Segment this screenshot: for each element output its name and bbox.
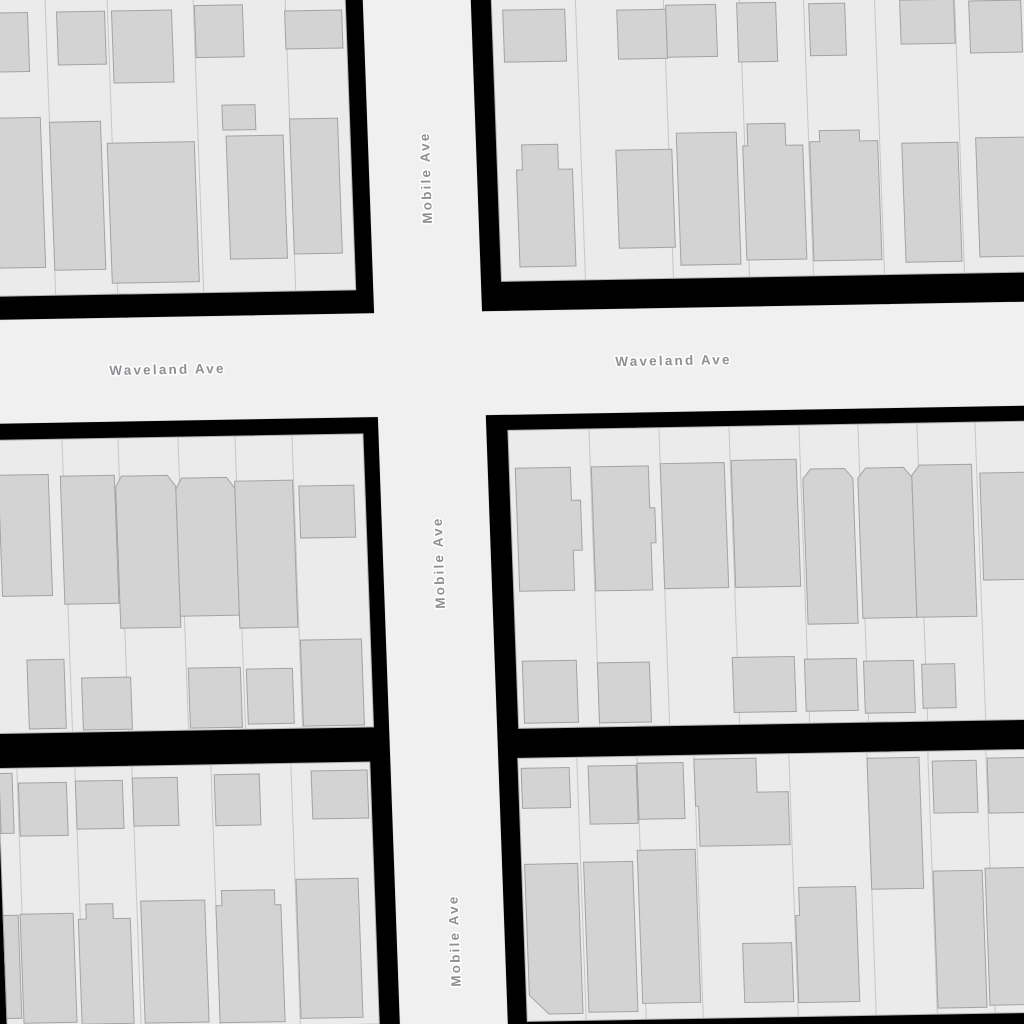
- building-footprint: [82, 677, 133, 730]
- building-footprint: [115, 475, 181, 628]
- building-footprint: [922, 664, 957, 709]
- building-footprint: [299, 485, 356, 538]
- building-footprint: [597, 662, 651, 723]
- building-footprint: [20, 913, 77, 1023]
- building-footprint: [732, 656, 796, 712]
- city-block-middle-left: [0, 434, 374, 734]
- building-footprint: [107, 142, 199, 284]
- building-footprint: [804, 658, 858, 711]
- building-footprint: [214, 774, 261, 826]
- building-footprint: [863, 660, 915, 713]
- building-footprint: [591, 466, 657, 591]
- building-footprint: [525, 863, 583, 1014]
- building-footprint: [985, 867, 1024, 1005]
- parcel-map: Mobile AveMobile AveMobile AveWaveland A…: [0, 0, 1024, 1024]
- building-footprint: [911, 464, 977, 617]
- building-footprint: [809, 130, 882, 261]
- building-footprint: [617, 9, 668, 59]
- building-footprint: [503, 9, 567, 62]
- building-footprint: [987, 757, 1024, 813]
- building-footprint: [795, 887, 860, 1003]
- building-footprint: [246, 668, 294, 724]
- city-block-bottom-left: [0, 762, 379, 1024]
- building-footprint: [60, 475, 119, 604]
- building-footprint: [56, 11, 106, 65]
- building-footprint: [588, 765, 638, 824]
- building-footprint: [296, 878, 363, 1018]
- building-footprint: [27, 659, 66, 729]
- building-footprint: [737, 2, 778, 62]
- building-footprint: [584, 861, 638, 1012]
- building-footprint: [980, 472, 1024, 580]
- building-footprint: [215, 890, 285, 1023]
- building-footprint: [289, 118, 342, 254]
- building-footprint: [666, 4, 718, 57]
- building-footprint: [616, 149, 676, 248]
- building-footprint: [900, 0, 956, 44]
- building-footprint: [0, 117, 46, 268]
- building-footprint: [976, 137, 1024, 257]
- building-footprint: [75, 780, 124, 829]
- city-block-bottom-right: [518, 748, 1024, 1021]
- street-label-waveland-ave: Waveland Ave: [615, 352, 732, 369]
- building-footprint: [132, 777, 179, 826]
- building-footprint: [222, 105, 256, 131]
- building-footprint: [300, 639, 364, 726]
- building-footprint: [809, 3, 847, 56]
- building-footprint: [802, 468, 858, 624]
- building-footprint: [226, 135, 287, 259]
- building-footprint: [857, 467, 916, 618]
- city-block-top-left: [0, 0, 356, 297]
- building-footprint: [933, 870, 987, 1008]
- building-footprint: [637, 849, 701, 1003]
- building-footprint: [932, 760, 978, 813]
- city-block-middle-right: [508, 420, 1024, 728]
- building-footprint: [194, 5, 244, 58]
- map-canvas[interactable]: Mobile AveMobile AveMobile AveWaveland A…: [0, 0, 1024, 1024]
- building-footprint: [49, 121, 105, 270]
- building-footprint: [78, 903, 134, 1024]
- building-footprint: [175, 477, 239, 616]
- building-footprint: [0, 13, 30, 73]
- building-footprint: [676, 132, 741, 265]
- building-footprint: [141, 900, 209, 1023]
- building-footprint: [0, 773, 14, 833]
- building-footprint: [111, 10, 174, 83]
- street-label-waveland-ave: Waveland Ave: [109, 361, 226, 378]
- building-footprint: [867, 757, 924, 889]
- building-footprint: [285, 10, 343, 49]
- building-footprint: [188, 667, 242, 728]
- building-footprint: [521, 767, 570, 808]
- building-footprint: [660, 463, 729, 589]
- building-footprint: [637, 762, 685, 819]
- building-footprint: [0, 474, 53, 596]
- building-footprint: [18, 782, 68, 836]
- building-footprint: [731, 459, 801, 587]
- building-footprint: [522, 660, 578, 723]
- building-footprint: [3, 915, 22, 1018]
- city-block-top-right: [490, 0, 1024, 281]
- building-footprint: [969, 0, 1023, 53]
- building-footprint: [311, 770, 369, 819]
- building-footprint: [235, 480, 298, 628]
- building-footprint: [902, 142, 962, 262]
- building-footprint: [743, 943, 794, 1003]
